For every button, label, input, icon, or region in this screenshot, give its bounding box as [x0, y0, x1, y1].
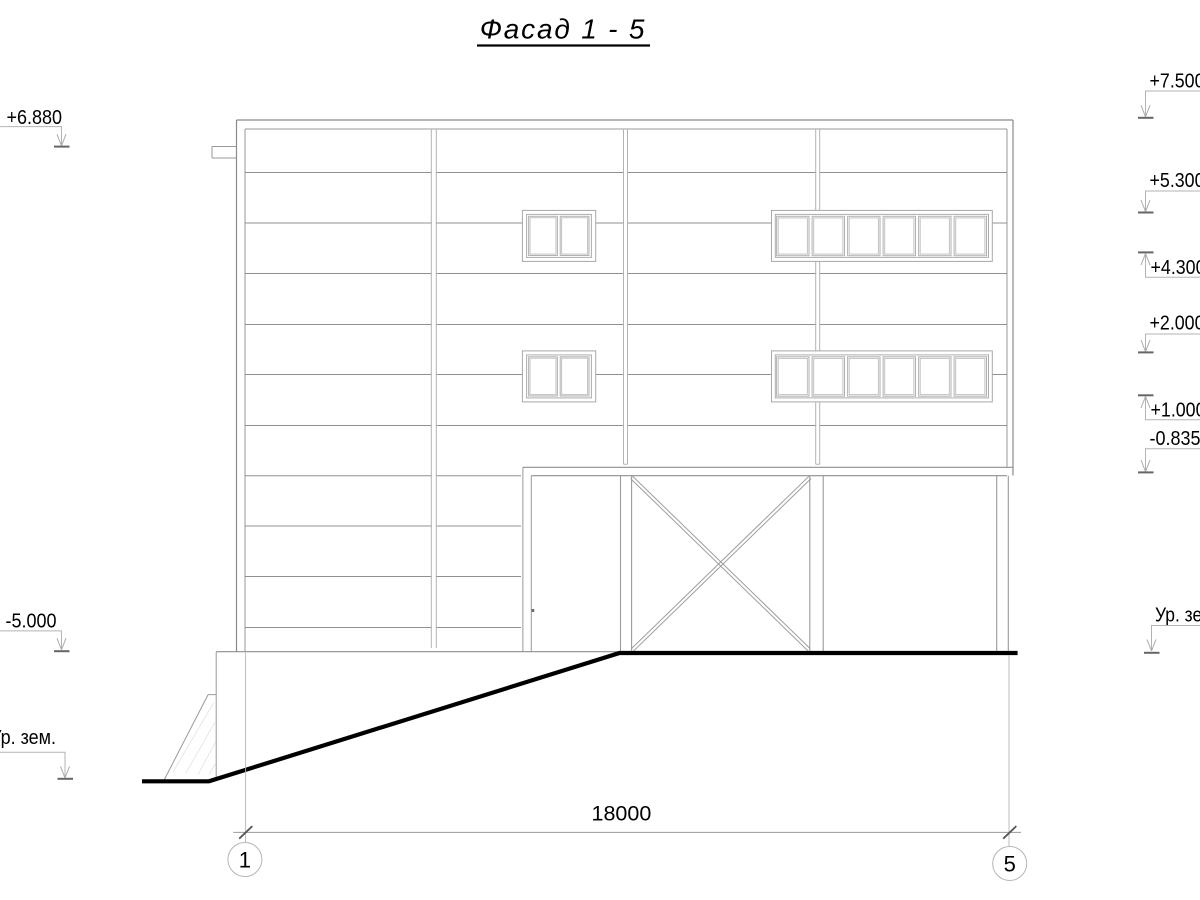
- svg-text:+4.300: +4.300: [1151, 256, 1200, 279]
- svg-text:18000: 18000: [592, 802, 652, 826]
- svg-text:+5.300: +5.300: [1150, 169, 1200, 192]
- svg-text:1: 1: [239, 848, 251, 873]
- svg-text:+1.000: +1.000: [1151, 399, 1200, 422]
- svg-text:Ур. зем.: Ур. зем.: [0, 726, 56, 749]
- svg-text:-5.000: -5.000: [6, 610, 57, 633]
- svg-text:+6.880: +6.880: [7, 106, 63, 129]
- svg-text:5: 5: [1004, 852, 1016, 877]
- svg-text:-0.835: -0.835: [1150, 427, 1200, 450]
- svg-text:Фасад 1 - 5: Фасад 1 - 5: [480, 14, 647, 45]
- svg-text:Ур. зем.: Ур. зем.: [1155, 604, 1200, 627]
- svg-text:+2.000: +2.000: [1150, 312, 1200, 335]
- svg-text:+7.500: +7.500: [1150, 70, 1200, 93]
